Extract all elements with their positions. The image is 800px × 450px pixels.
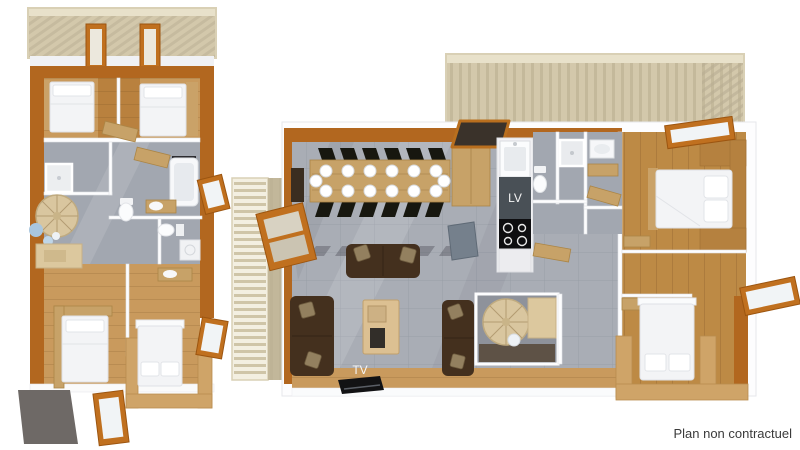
- washer: [180, 240, 200, 260]
- washbasin: [163, 270, 177, 278]
- dishwasher-label: LV: [508, 191, 522, 205]
- pillow: [704, 176, 728, 198]
- bedroom-lower-left: [54, 306, 112, 388]
- pillow: [704, 200, 728, 222]
- bed-surround: [700, 228, 746, 252]
- entry-window: [93, 390, 129, 445]
- game-board: [368, 306, 386, 322]
- cushion: [298, 301, 315, 318]
- kitchen: LV: [497, 138, 533, 272]
- upper-floor-plan: [18, 8, 230, 446]
- upper-balcony: [28, 8, 216, 70]
- headboard: [44, 80, 50, 130]
- east-window-lower: [196, 317, 228, 359]
- shelf: [624, 236, 650, 247]
- pillow: [144, 87, 182, 98]
- balcony-door-left: [86, 24, 106, 70]
- partition-wall: [622, 250, 746, 253]
- cooktop: [499, 219, 531, 249]
- cushion: [399, 246, 416, 263]
- pillow: [53, 85, 91, 96]
- partition-wall: [622, 294, 692, 297]
- bed: [138, 326, 182, 386]
- alcove-frame: [616, 384, 748, 400]
- balcony-door-right: [140, 24, 160, 70]
- pillow: [669, 354, 690, 371]
- toilet: [119, 203, 133, 221]
- dining-table: [310, 160, 450, 202]
- alcove-frame: [126, 394, 212, 408]
- spiral-staircase-main: [476, 294, 562, 364]
- vanity: [588, 164, 618, 176]
- washbasin: [149, 202, 163, 211]
- console: [291, 168, 304, 202]
- disclaimer-text: Plan non contractuel: [673, 426, 792, 441]
- cushion: [450, 354, 466, 370]
- floorplan-render: LV: [0, 0, 800, 450]
- pillow: [141, 362, 159, 376]
- floorplan-page: LV: [0, 0, 800, 450]
- bedroom-upper-right: [140, 82, 198, 136]
- book: [370, 328, 385, 348]
- stair-platform: [528, 298, 556, 338]
- railing-slats: [234, 180, 266, 378]
- decor-sphere: [508, 334, 520, 346]
- pillow: [645, 354, 666, 371]
- bed-frame: [186, 82, 198, 136]
- kitchen-cabinet: [499, 249, 531, 272]
- toilet: [158, 224, 174, 236]
- decor-cushion: [29, 223, 43, 237]
- pillow: [66, 320, 104, 332]
- north-wall: [30, 66, 214, 78]
- tv-label: TV: [352, 363, 367, 377]
- toilet: [534, 176, 547, 193]
- partition-wall: [109, 142, 112, 195]
- balcony-rail-top: [28, 8, 216, 16]
- toilet-tank: [534, 166, 546, 173]
- pillow: [161, 362, 179, 376]
- main-floor-plan: LV: [232, 54, 800, 400]
- bedroom-upper-left: [44, 80, 94, 132]
- entry-mat: [18, 390, 78, 444]
- terrace-rail-top: [446, 54, 744, 63]
- kitchen-island: [448, 222, 478, 260]
- faucet: [513, 142, 517, 146]
